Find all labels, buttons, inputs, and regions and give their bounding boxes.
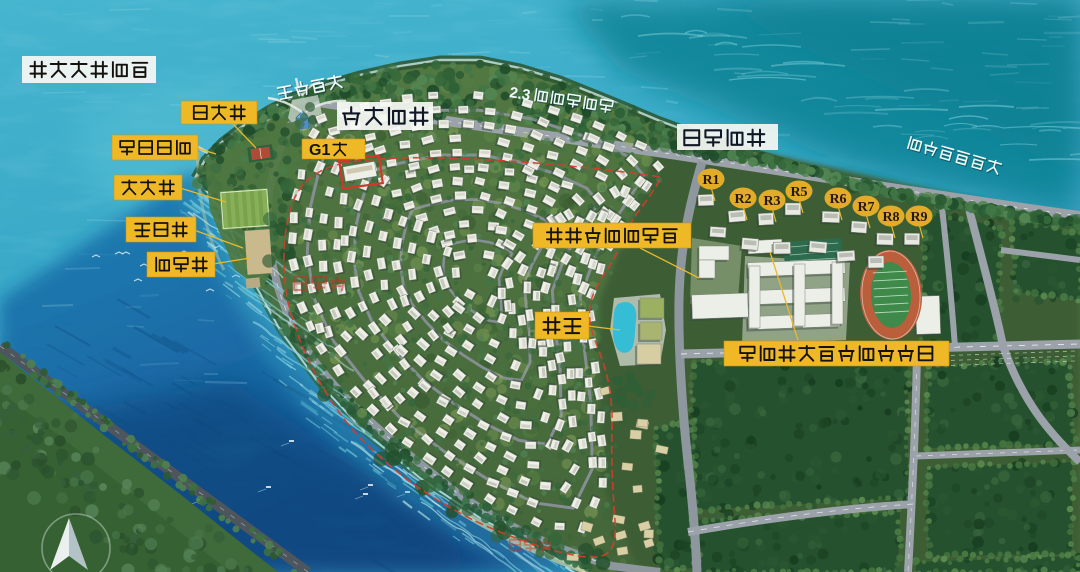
svg-text:R3: R3 [763,194,780,209]
svg-text:R7: R7 [857,200,874,215]
svg-text:R9: R9 [910,210,927,225]
svg-text:R6: R6 [829,192,846,207]
svg-text:R1: R1 [702,173,719,188]
svg-text:2.3: 2.3 [508,84,531,104]
svg-text:R2: R2 [734,192,751,207]
svg-text:R8: R8 [882,210,899,225]
svg-text:G1: G1 [309,142,330,159]
svg-text:R5: R5 [790,185,807,200]
